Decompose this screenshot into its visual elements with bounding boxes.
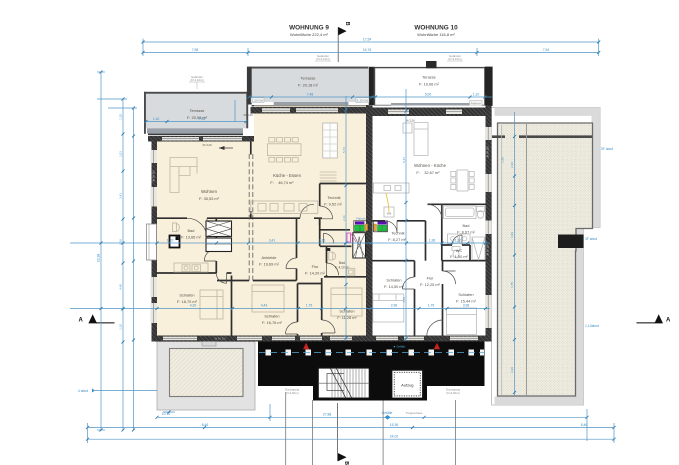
svg-text:F: 1,50 m²: F: 1,50 m² [450,254,468,259]
svg-text:F: 20,18 m²: F: 20,18 m² [298,83,319,88]
svg-text:Schlafen: Schlafen [386,278,401,283]
svg-text:(h=2,60m): (h=2,60m) [446,391,459,395]
svg-text:F: 46,74 m²: F: 46,74 m² [270,180,294,185]
svg-text:1,55: 1,55 [501,157,505,163]
svg-text:Flur: Flur [312,264,319,269]
svg-text:4 abcd: 4 abcd [78,389,88,393]
svg-text:1,10 Gel: 1,10 Gel [357,99,368,103]
svg-text:Bad: Bad [188,228,195,233]
svg-text:3h 30 110: 3h 30 110 [486,244,490,256]
svg-text:Wohnen: Wohnen [201,189,218,194]
svg-text:F: 14,50 m²: F: 14,50 m² [384,284,405,289]
svg-text:1,10abcd: 1,10abcd [585,324,599,328]
svg-text:2,11: 2,11 [342,215,346,221]
svg-text:WOHNUNG 10: WOHNUNG 10 [414,25,458,32]
svg-text:F: 9,52 m²: F: 9,52 m² [324,202,342,207]
svg-text:F: 32,67 m²: F: 32,67 m² [416,170,440,175]
svg-text:10 10: 10 10 [162,412,171,416]
svg-text:15,36: 15,36 [390,423,399,427]
svg-text:1,75: 1,75 [306,303,313,307]
svg-text:Schlafen: Schlafen [264,314,279,319]
svg-text:4,43: 4,43 [261,303,268,307]
svg-text:3h 3,26: 3h 3,26 [405,119,415,123]
svg-text:Terrasse: Terrasse [190,108,205,113]
svg-text:Terasse: Terasse [422,75,436,80]
svg-text:F: 8,27 m²: F: 8,27 m² [388,237,406,242]
svg-text:Treppenhaus: Treppenhaus [406,411,423,415]
svg-text:Wohnfläche 222,4 m²: Wohnfläche 222,4 m² [290,32,329,37]
svg-text:7,54: 7,54 [543,48,550,52]
svg-text:3F abcd: 3F abcd [585,237,597,241]
svg-text:Küche - Essen: Küche - Essen [273,173,302,178]
svg-text:1,01: 1,01 [119,151,123,157]
svg-text:3h 59 110: 3h 59 110 [152,170,156,182]
svg-text:4,40: 4,40 [119,284,123,290]
svg-text:F: 19,06 m²: F: 19,06 m² [419,82,440,87]
svg-text:(h=2,60m): (h=2,60m) [285,391,298,395]
svg-text:F: 4,10 m²: F: 4,10 m² [335,266,350,270]
svg-text:WOHNUNG 9: WOHNUNG 9 [289,25,329,32]
svg-text:WC: WC [456,248,463,253]
svg-text:16,76: 16,76 [363,48,372,52]
svg-text:Technik: Technik [327,195,340,200]
svg-text:1,36: 1,36 [429,238,436,242]
svg-text:(h=1,10m): (h=1,10m) [448,57,461,61]
svg-text:3h 59 110: 3h 59 110 [214,337,226,341]
svg-text:27,88: 27,88 [323,413,332,417]
svg-text:8,46: 8,46 [202,423,209,427]
svg-text:3F abcd: 3F abcd [601,147,613,151]
svg-text:A: A [666,317,671,323]
svg-text:1,10: 1,10 [455,238,462,242]
svg-text:Bad: Bad [339,261,345,265]
svg-text:7,02: 7,02 [199,117,206,121]
svg-text:3h 59 110: 3h 59 110 [460,337,472,341]
svg-text:7,98: 7,98 [192,48,199,52]
svg-text:1,03: 1,03 [510,232,514,238]
svg-text:◄ Gefälle: ◄ Gefälle [393,345,406,349]
svg-text:1,10: 1,10 [119,114,123,120]
svg-text:F: 14,20 m²: F: 14,20 m² [305,271,326,276]
svg-text:1,75: 1,75 [428,303,435,307]
svg-text:4,20: 4,20 [190,303,197,307]
svg-text:(h=1,10m): (h=1,10m) [316,57,329,61]
svg-text:Schlafen: Schlafen [458,292,473,297]
svg-text:F: 16,76 m²: F: 16,76 m² [262,320,283,325]
svg-text:B: B [343,461,349,465]
svg-text:3h 3,26: 3h 3,26 [243,113,253,117]
svg-text:1,10: 1,10 [119,324,123,330]
svg-text:3,41: 3,41 [269,238,276,242]
svg-text:Terrasse: Terrasse [301,76,316,81]
svg-text:1,10 Gel: 1,10 Gel [252,99,263,103]
svg-text:4,36: 4,36 [510,367,514,373]
svg-text:3h 59 110: 3h 59 110 [486,146,490,158]
svg-text:F: 19,69 m²: F: 19,69 m² [259,262,280,267]
svg-text:WM: WM [387,212,392,216]
svg-text:F: 35,53 m²: F: 35,53 m² [199,196,220,201]
svg-text:Flur: Flur [427,276,434,281]
svg-text:8,46: 8,46 [581,423,588,427]
svg-text:Wohnen - Küche: Wohnen - Küche [414,163,447,168]
svg-text:Ankleide: Ankleide [262,255,277,260]
svg-text:2,36: 2,36 [319,238,326,242]
svg-text:1,10: 1,10 [153,117,160,121]
svg-text:17,54: 17,54 [363,38,372,42]
svg-text:7,48: 7,48 [307,93,314,97]
svg-text:2,96: 2,96 [391,303,398,307]
svg-text:5,74: 5,74 [342,147,346,153]
svg-text:5,47: 5,47 [402,157,406,163]
svg-text:(h=1,10m): (h=1,10m) [190,78,203,82]
svg-text:1,75: 1,75 [510,282,514,288]
svg-text:Fallrohr: Fallrohr [356,217,366,221]
svg-text:Technik: Technik [391,231,404,236]
svg-text:Fallrohr: Fallrohr [471,101,481,105]
svg-text:Aufzug: Aufzug [401,382,413,387]
svg-text:Schlafen: Schlafen [339,309,354,314]
svg-text:Bad: Bad [463,223,470,228]
svg-text:4,75: 4,75 [402,297,406,303]
svg-text:5,00: 5,00 [425,93,432,97]
svg-text:23,38: 23,38 [97,254,101,263]
svg-text:3,98: 3,98 [463,303,470,307]
svg-text:F: 12,25 m²: F: 12,25 m² [420,282,441,287]
svg-text:3h 3,26: 3h 3,26 [202,143,212,147]
svg-text:F: 13,66 m²: F: 13,66 m² [181,235,202,240]
svg-text:2,26: 2,26 [510,162,514,168]
svg-text:24,02: 24,02 [390,435,399,439]
svg-text:Schlafen: Schlafen [179,293,194,298]
svg-text:3,41: 3,41 [119,193,123,199]
svg-text:A: A [79,317,84,323]
svg-text:1,20: 1,20 [167,238,174,242]
svg-text:1,10: 1,10 [473,93,480,97]
svg-text:B: B [344,22,350,26]
svg-text:Wohnfläche 116,8 m²: Wohnfläche 116,8 m² [417,32,455,37]
